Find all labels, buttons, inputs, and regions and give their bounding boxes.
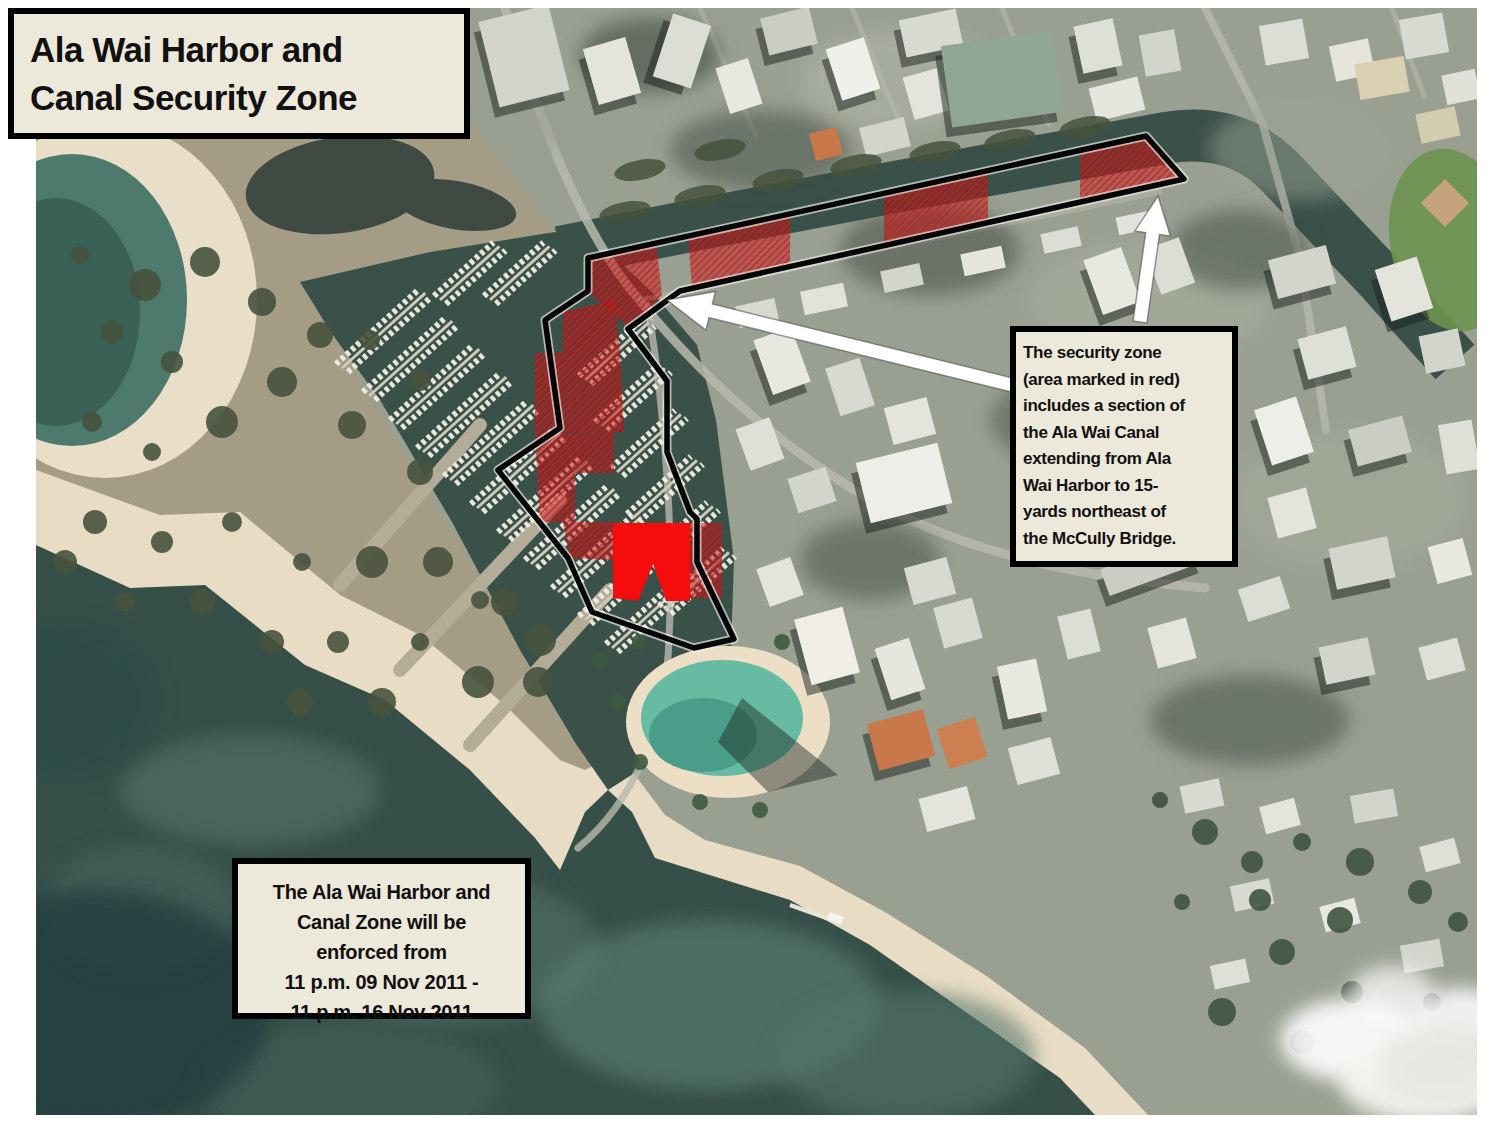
tree [360,330,380,350]
reef-swirl [775,990,1035,1120]
tree [411,633,429,651]
tree [53,550,77,574]
tree [190,247,220,277]
tree [248,288,276,316]
tree [1346,848,1374,876]
cloud [1380,1025,1500,1105]
tree [471,591,489,609]
tree [409,369,431,391]
tree [407,459,433,485]
map-title: Ala Wai Harbor and Canal Security Zone [8,8,470,139]
building [1399,12,1449,59]
tree [206,406,238,438]
palm-tree [632,634,648,650]
tree [524,624,556,656]
tree [129,269,161,301]
tree [1293,833,1311,851]
tree [1249,889,1271,911]
cloud [1350,966,1434,1018]
tree [1192,819,1218,845]
building [1418,328,1465,373]
palm-tree [592,652,608,668]
palm-tree [774,634,790,650]
tree [491,588,519,616]
tree [161,351,183,373]
satellite-map [0,0,1511,1125]
tree [287,689,313,715]
tree [523,667,553,697]
palm-tree [610,694,626,710]
building [1259,18,1309,65]
tree [1448,912,1468,932]
tree [338,411,366,439]
enforcement-dates: The Ala Wai Harbor and Canal Zone will b… [232,858,531,1019]
tree [1408,880,1432,904]
tree [307,322,333,348]
tree [293,553,311,571]
palm-tree [632,754,648,770]
tree [356,546,388,578]
tree [151,531,173,553]
tree [82,412,102,432]
tree [368,688,396,716]
tree [100,320,124,344]
building [941,31,1063,128]
land-texture-blob [1150,675,1350,765]
tree [260,630,284,654]
tree [1208,998,1236,1026]
tree [267,367,297,397]
security-zone-description: The security zone (area marked in red) i… [1010,326,1238,567]
tree [143,443,161,461]
tree [462,666,494,698]
reef-swirl [120,735,380,845]
tree [1174,894,1190,910]
tree [1269,939,1295,965]
tree [1241,851,1263,873]
tree [1152,792,1168,808]
tree [423,547,453,577]
tree [1327,907,1353,933]
tree [222,512,242,532]
map-page: Ala Wai Harbor and Canal Security Zone T… [0,0,1511,1125]
tree [71,246,89,264]
land-texture-blob [1210,100,1390,200]
tree [189,589,215,615]
palm-tree [752,802,768,818]
building [1139,29,1182,77]
tree [327,631,349,653]
palm-tree [692,794,708,810]
tree [115,592,135,612]
tree [83,510,107,534]
